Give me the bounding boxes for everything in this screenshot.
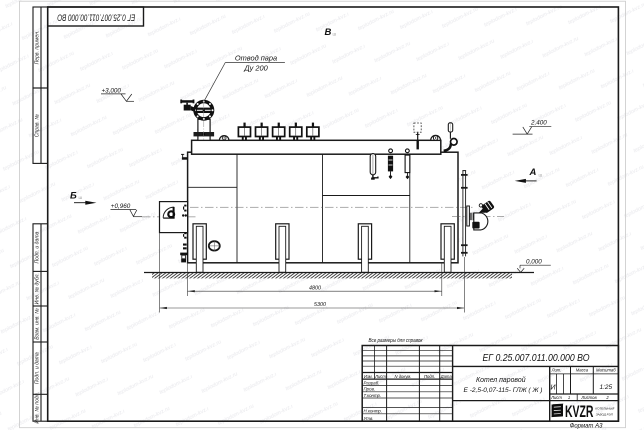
svg-text:Лист: Лист: [550, 395, 562, 400]
svg-text:Все размеры для справок: Все размеры для справок: [369, 338, 423, 344]
svg-text:ш: ш: [539, 173, 543, 178]
svg-text:Дата: Дата: [440, 374, 453, 379]
svg-text:Разраб.: Разраб.: [364, 380, 380, 385]
svg-text:Подп.: Подп.: [424, 374, 435, 379]
svg-text:Т.контр.: Т.контр.: [364, 393, 382, 398]
svg-text:Взам. инв. №: Взам. инв. №: [35, 308, 41, 340]
svg-text:Б: Б: [70, 191, 77, 202]
svg-text:Перв. примен.: Перв. примен.: [35, 31, 41, 65]
svg-text:1: 1: [568, 395, 570, 400]
svg-text:Лист: Лист: [374, 374, 386, 379]
svg-text:N докум.: N докум.: [395, 374, 412, 379]
svg-text:ш: ш: [79, 195, 83, 200]
svg-text:А: А: [529, 167, 537, 178]
svg-text:ЗАВОД РЭП: ЗАВОД РЭП: [596, 413, 614, 417]
svg-text:5300: 5300: [314, 302, 326, 308]
svg-text:4800: 4800: [309, 285, 321, 291]
svg-text:ш: ш: [333, 32, 337, 37]
svg-text:В: В: [325, 27, 332, 38]
svg-text:Лит.: Лит.: [551, 368, 562, 373]
svg-text:Отвод пара: Отвод пара: [235, 54, 277, 63]
svg-text:Масштаб: Масштаб: [596, 368, 616, 373]
svg-text:Утв.: Утв.: [364, 416, 374, 421]
svg-text:+0,960: +0,960: [111, 203, 131, 210]
svg-text:Пров.: Пров.: [364, 387, 376, 392]
svg-text:ЕГ 0.25.007.011.00.000 ВО: ЕГ 0.25.007.011.00.000 ВО: [57, 12, 135, 22]
svg-text:КОТЕЛЬНЫЙ: КОТЕЛЬНЫЙ: [595, 406, 615, 410]
svg-text:0,000: 0,000: [526, 259, 542, 266]
svg-text:Инв. № дубл.: Инв. № дубл.: [35, 273, 41, 304]
svg-text:Е -2,5-0,07-115- ГЛЖ ( Ж ): Е -2,5-0,07-115- ГЛЖ ( Ж ): [464, 387, 543, 394]
svg-text:Масса: Масса: [576, 368, 589, 373]
svg-text:Н.контр.: Н.контр.: [364, 409, 383, 414]
svg-text:Формат А3: Формат А3: [570, 423, 603, 429]
svg-text:Подп. и дата: Подп. и дата: [35, 231, 41, 263]
svg-text:Подп. и дата: Подп. и дата: [35, 352, 41, 384]
svg-text:Ду 200: Ду 200: [243, 64, 268, 73]
svg-text:Инв. № подл.: Инв. № подл.: [35, 392, 41, 424]
svg-text:Котел паровой: Котел паровой: [476, 375, 526, 384]
svg-text:+3,000: +3,000: [102, 87, 122, 94]
svg-text:Изм.: Изм.: [364, 374, 373, 379]
svg-text:ЕГ 0.25.007.011.00.000 ВО: ЕГ 0.25.007.011.00.000 ВО: [483, 353, 590, 364]
svg-text:Листов: Листов: [580, 395, 597, 400]
svg-text:KVZR: KVZR: [565, 403, 594, 421]
svg-text:2,400: 2,400: [530, 120, 547, 127]
svg-text:1:25: 1:25: [599, 384, 612, 391]
svg-text:Справ. №: Справ. №: [35, 114, 41, 138]
